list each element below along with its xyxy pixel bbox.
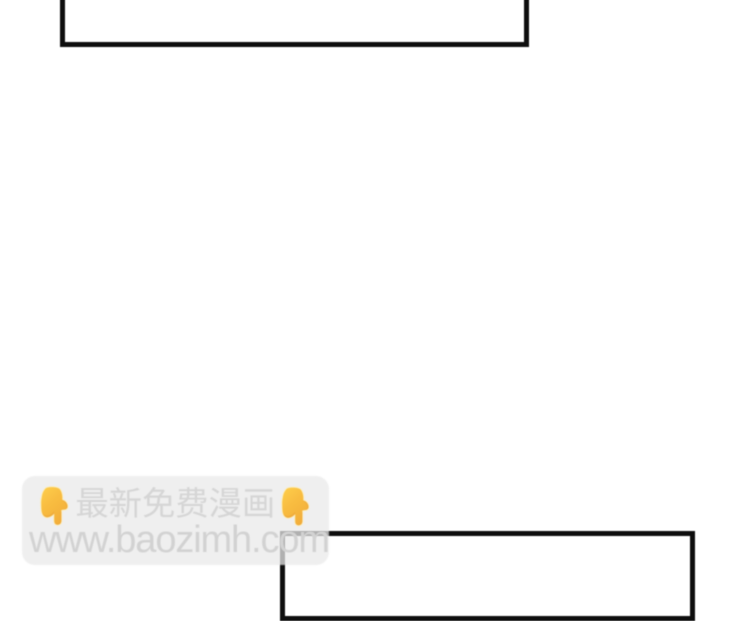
svg-text:www.baozimh.com: www.baozimh.com	[28, 519, 330, 561]
